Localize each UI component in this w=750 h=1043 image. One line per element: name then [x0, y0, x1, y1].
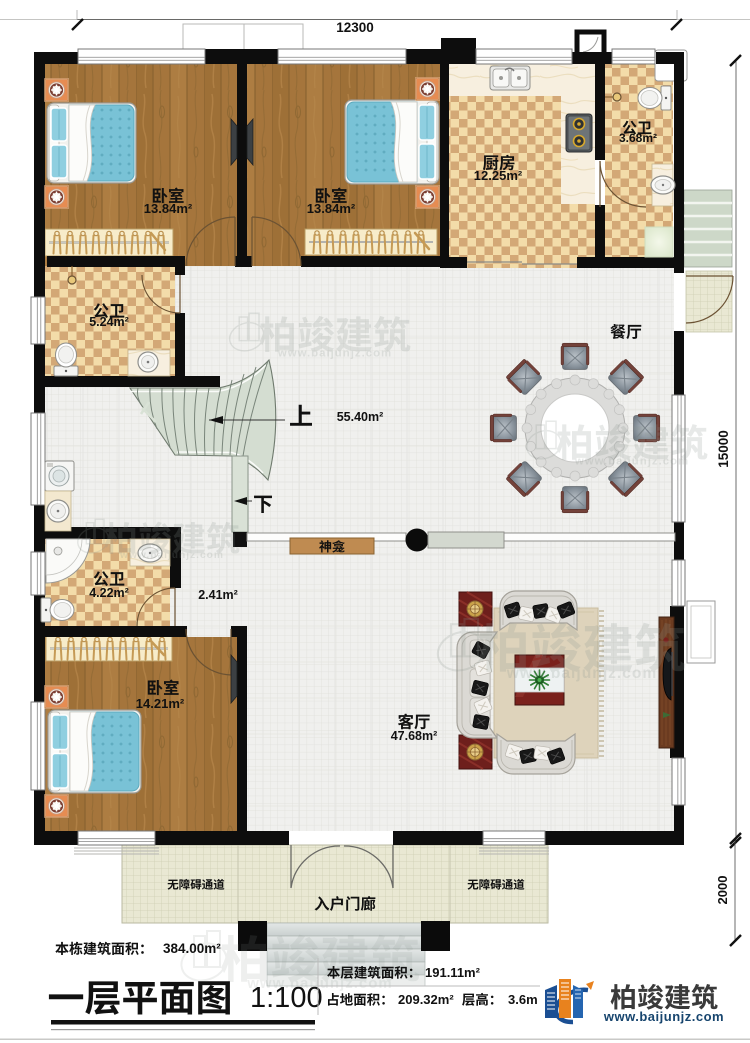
svg-text:47.68m²: 47.68m² — [391, 729, 438, 743]
svg-text:191.11m²: 191.11m² — [425, 965, 481, 980]
svg-text:384.00m²: 384.00m² — [163, 941, 221, 956]
svg-text:15000: 15000 — [716, 430, 731, 468]
svg-text:2.41m²: 2.41m² — [198, 588, 238, 602]
svg-text:4.22m²: 4.22m² — [89, 586, 129, 600]
svg-text:3.6m: 3.6m — [508, 992, 538, 1007]
svg-text:12.25m²: 12.25m² — [474, 168, 523, 183]
svg-text:www.baijunjz.com: www.baijunjz.com — [574, 456, 689, 468]
svg-text:12300: 12300 — [336, 20, 374, 35]
svg-text:209.32m²: 209.32m² — [398, 992, 454, 1007]
svg-text:www.baijunjz.com: www.baijunjz.com — [506, 665, 658, 682]
svg-text:www.baijunjz.com: www.baijunjz.com — [119, 550, 224, 561]
svg-text:1:100: 1:100 — [250, 982, 323, 1014]
svg-text:14.21m²: 14.21m² — [136, 696, 185, 711]
svg-text:13.84m²: 13.84m² — [307, 201, 356, 216]
svg-text:55.40m²: 55.40m² — [337, 410, 384, 424]
svg-text:2000: 2000 — [715, 876, 730, 905]
svg-text:13.84m²: 13.84m² — [144, 201, 193, 216]
svg-text:www.baijunjz.com: www.baijunjz.com — [603, 1009, 724, 1024]
svg-text:5.24m²: 5.24m² — [89, 315, 129, 329]
svg-text:3.68m²: 3.68m² — [619, 131, 657, 145]
svg-text:www.baijunjz.com: www.baijunjz.com — [277, 348, 392, 360]
